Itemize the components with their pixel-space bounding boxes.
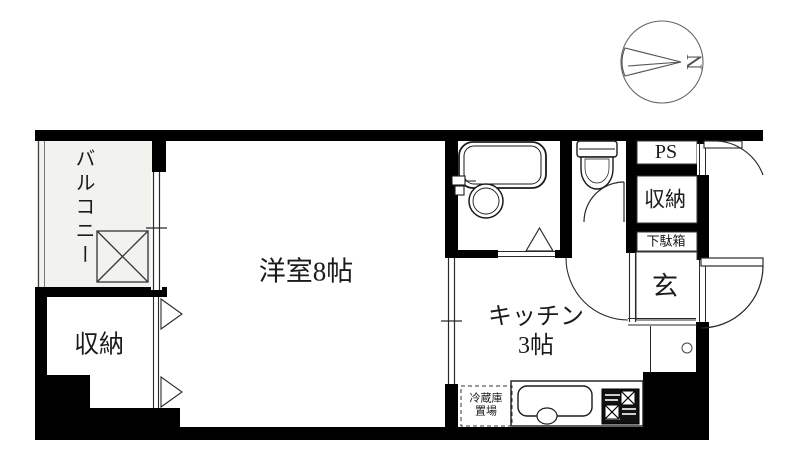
toilet-icon	[577, 141, 617, 189]
room-label-shoe-cabinet: 下駄箱	[646, 235, 685, 248]
room-label-pipe-space: PS	[655, 142, 677, 162]
balcony-area	[39, 141, 153, 287]
room-label-balcony: バルコニー	[73, 148, 93, 268]
closet-door-arrow-icon	[161, 299, 182, 329]
room-kitchen-slider	[441, 258, 462, 384]
room-label-kitchen: キッチン	[488, 305, 584, 329]
water-heater-icon	[682, 343, 692, 353]
floor-plan-drawing: N	[0, 0, 800, 455]
stove-icon	[602, 389, 639, 424]
compass-north-letter: N	[682, 54, 707, 70]
entrance-step	[628, 319, 697, 374]
closet-door-arrow-icon	[161, 377, 182, 407]
floor-plan: N バルコニー 洋室8帖 収納 キッチン 3帖 PS 収納 下駄箱 玄 冷蔵庫 …	[0, 0, 800, 455]
closet-left-doors	[154, 297, 183, 408]
compass-icon: N	[621, 21, 707, 103]
pipe-space-door	[697, 141, 763, 175]
room-label-western-room: 洋室8帖	[259, 259, 354, 286]
entrance-door	[696, 258, 763, 328]
room-label-kitchen-size: 3帖	[518, 334, 554, 358]
label-refrigerator-space-line1: 冷蔵庫	[470, 394, 503, 405]
label-refrigerator-space-line2: 置場	[475, 407, 497, 418]
room-label-entrance: 玄	[652, 274, 678, 300]
bath-door-icon	[526, 228, 553, 251]
toilet-door	[584, 182, 624, 222]
room-label-closet-right: 収納	[644, 190, 686, 211]
bath-door	[498, 228, 555, 258]
room-label-closet-left: 収納	[74, 333, 124, 358]
